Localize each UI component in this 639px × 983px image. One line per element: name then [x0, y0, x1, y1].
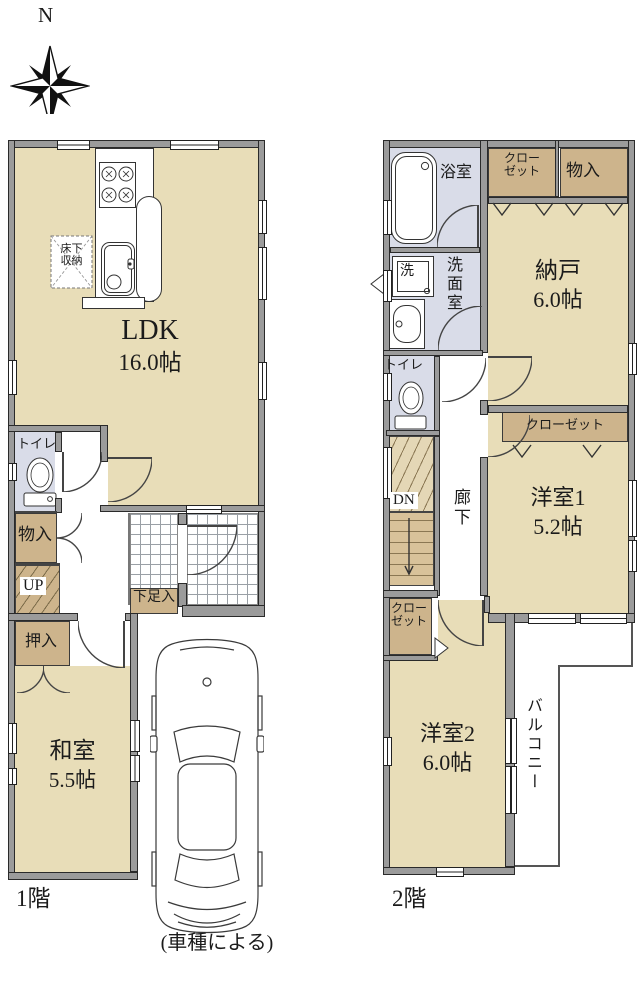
shoe-storage-label: 下足入 — [133, 590, 175, 606]
compass: N — [8, 4, 92, 120]
balcony-rail — [631, 622, 633, 667]
room-name: 和室 — [15, 738, 130, 764]
closet-a-label: クロー ゼット — [488, 152, 556, 179]
wall — [383, 655, 438, 661]
wall — [8, 140, 265, 148]
door-leaf — [187, 525, 237, 527]
window — [528, 613, 576, 624]
door-arc-entrance — [187, 525, 237, 575]
kitchen-sink-icon — [101, 242, 135, 296]
storage-2f-label: 物入 — [566, 161, 600, 180]
wall — [383, 590, 438, 598]
window — [383, 373, 392, 401]
window — [130, 755, 140, 782]
window — [628, 343, 637, 375]
room-name: 洋室1 — [488, 486, 628, 511]
floor1-caption: 1階 — [16, 886, 51, 912]
wall — [15, 511, 57, 513]
balcony-rail — [513, 865, 560, 867]
window — [8, 360, 17, 395]
closet-hanger-mark — [534, 202, 554, 217]
room-name: 洋室2 — [390, 722, 505, 747]
window — [130, 720, 140, 752]
window — [258, 362, 267, 400]
window — [258, 200, 267, 234]
stairs-up-label: UP — [20, 577, 46, 595]
window — [383, 270, 392, 302]
room-area: 5.5帖 — [15, 769, 130, 793]
yoshitsu1-label: 洋室1 5.2帖 — [488, 486, 628, 539]
bathroom-label: 浴室 — [440, 164, 472, 182]
window — [628, 480, 637, 537]
wall — [8, 872, 138, 880]
wall — [488, 405, 628, 413]
door-arc-toilet-2f — [442, 358, 486, 402]
closet-a-line1: クロー — [504, 151, 540, 165]
wall — [434, 356, 440, 436]
wall — [55, 432, 62, 452]
door-leaf — [482, 600, 484, 646]
wall — [480, 457, 488, 596]
wall — [434, 436, 440, 596]
toilet-2f-label: トイレ — [384, 358, 423, 373]
stove-icon — [99, 162, 136, 208]
storage-1f-label: 物入 — [18, 525, 52, 544]
door-arc-toilet-1f — [62, 452, 102, 492]
window — [8, 463, 17, 481]
door-arc-washitsu — [78, 621, 125, 668]
ldk-label: LDK 16.0帖 — [60, 315, 240, 376]
toilet-icon-1f — [21, 455, 59, 509]
door-arc-bathroom — [437, 205, 479, 247]
window — [186, 505, 222, 514]
window — [505, 718, 517, 764]
compass-rose-icon — [10, 28, 90, 114]
hallway-label: 廊下 — [448, 488, 473, 528]
door-arc-yoshitsu2 — [438, 600, 484, 646]
window — [170, 140, 219, 150]
door-leaf — [108, 457, 152, 459]
toilet-1f-label: トイレ — [17, 437, 56, 452]
stairs-down-arrow-icon — [404, 516, 414, 580]
underfloor-storage-box: 床下 収納 — [50, 235, 93, 289]
door-arc-ldk — [108, 458, 152, 502]
window — [383, 200, 392, 235]
window — [505, 766, 517, 814]
wall — [386, 430, 440, 436]
closet-c-label: クロー ゼット — [386, 602, 432, 629]
room-area: 16.0帖 — [60, 350, 240, 376]
compass-north-label: N — [38, 4, 53, 28]
wall — [383, 350, 483, 356]
underfloor-storage-label-1: 床下 — [61, 243, 83, 255]
wall — [8, 613, 78, 621]
yoshitsu2-label: 洋室2 6.0帖 — [390, 722, 505, 775]
door-leaf — [477, 205, 479, 247]
wall — [178, 513, 187, 525]
room-area: 6.0帖 — [488, 288, 628, 313]
floor2-caption: 2階 — [392, 886, 427, 912]
closet-a-line2: ゼット — [504, 164, 540, 178]
door-leaf — [62, 452, 64, 492]
toilet-icon-2f — [393, 378, 429, 432]
underfloor-storage-label-2: 収納 — [61, 255, 83, 267]
kitchen-counter-cap — [82, 297, 145, 309]
nando-label: 納戸 6.0帖 — [488, 258, 628, 312]
wall — [15, 563, 60, 565]
wall — [383, 140, 635, 148]
window — [436, 867, 464, 877]
washbasin-icon — [389, 299, 425, 349]
door-arc-nando — [488, 357, 532, 401]
balcony-rail — [558, 665, 633, 667]
closet-hanger-mark — [582, 444, 602, 459]
car-note-caption: (車種による) — [117, 932, 317, 954]
wall — [480, 400, 488, 415]
door-arc-storage-upper — [57, 513, 82, 538]
window — [57, 140, 90, 150]
door-arc-oshiire-right — [43, 666, 70, 693]
wall — [484, 596, 490, 613]
wall — [100, 505, 265, 512]
washroom-label: 洗面室 — [440, 256, 464, 313]
car-top-view-icon — [150, 636, 264, 936]
room-name: LDK — [60, 315, 240, 346]
window — [580, 613, 627, 624]
stairs-down-label: DN — [390, 492, 418, 509]
bathtub-icon — [391, 152, 437, 244]
room-area: 6.0帖 — [390, 751, 505, 776]
room-area: 5.2帖 — [488, 515, 628, 540]
balcony-label: バルコニー — [520, 697, 544, 792]
wall — [390, 247, 480, 253]
wall — [178, 583, 187, 607]
closet-hanger-mark — [604, 202, 624, 217]
wall — [182, 605, 265, 617]
washitsu-label: 和室 5.5帖 — [15, 738, 130, 792]
floorplan-canvas: N — [0, 0, 639, 983]
washer-label: 洗 — [400, 264, 414, 280]
balcony-rail — [558, 665, 560, 867]
yoshitsu1-closet-label: クローゼット — [502, 418, 628, 433]
window — [628, 540, 637, 572]
oshiire-label: 押入 — [25, 633, 57, 651]
room-name: 納戸 — [488, 258, 628, 284]
closet-c-line2: ゼット — [391, 614, 427, 628]
wall — [8, 425, 108, 432]
kitchen-counter-side — [136, 196, 162, 302]
door-leaf — [123, 621, 125, 668]
closet-c-line1: クロー — [391, 601, 427, 615]
closet-hanger-mark — [564, 202, 584, 217]
window — [258, 247, 267, 300]
door-arc-storage-lower — [57, 538, 82, 563]
door-leaf — [488, 356, 532, 358]
closet-hanger-mark — [492, 202, 512, 217]
door-arc-oshiire-left — [17, 666, 44, 693]
